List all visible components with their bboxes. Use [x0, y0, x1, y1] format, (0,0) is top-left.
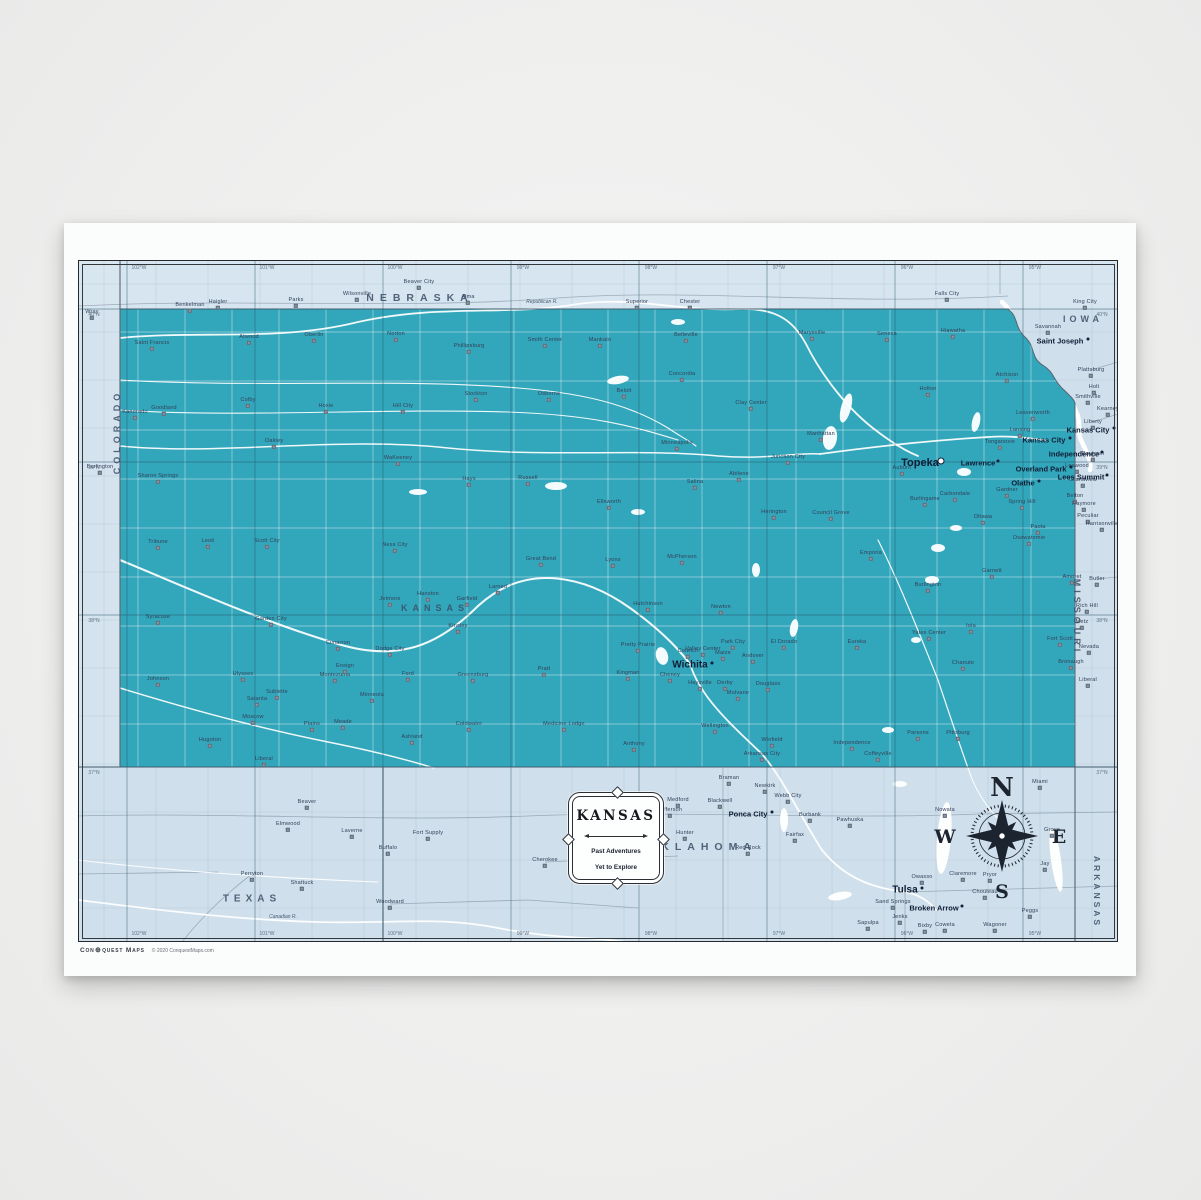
town-label: Kinsley: [448, 623, 467, 629]
town-label: El Dorado: [771, 639, 797, 645]
town-marker: [156, 682, 160, 686]
town-marker: [542, 672, 546, 676]
town-label: Newkirk: [755, 783, 776, 789]
town-label: Belton: [1067, 493, 1084, 499]
town-marker: [275, 695, 279, 699]
town-label: Greensburg: [457, 672, 488, 678]
town-marker: [607, 505, 611, 509]
town-marker: [324, 409, 328, 413]
town-marker: [850, 746, 854, 750]
city-marker: [961, 905, 964, 908]
state-label: COLORADO: [112, 390, 122, 475]
town-marker: [927, 636, 931, 640]
town-label: Sand Springs: [875, 899, 910, 905]
town-label: Jetmore: [379, 596, 400, 602]
state-label: ARKANSAS: [1092, 856, 1102, 928]
town-label: Atchison: [996, 372, 1019, 378]
grid-label-latitude: 38°N: [88, 618, 99, 624]
town-marker: [341, 725, 345, 729]
town-marker: [394, 337, 398, 341]
town-marker: [961, 666, 965, 670]
town-label: Sublette: [266, 689, 288, 695]
divider-line: [589, 836, 643, 837]
town-label: Cheney: [660, 672, 680, 678]
town-label: Concordia: [669, 371, 696, 377]
city-marker: [921, 887, 924, 890]
town-marker: [401, 409, 405, 413]
town-marker: [668, 678, 672, 682]
town-label: Fort Scott: [1047, 636, 1073, 642]
compass-east-label: E: [1052, 826, 1066, 848]
town-label: Cimarron: [326, 640, 350, 646]
town-label: Liberal: [255, 756, 273, 762]
town-marker: [731, 645, 735, 649]
town-label: Council Grove: [812, 510, 849, 516]
town-label: Jenks: [892, 914, 907, 920]
town-marker: [1005, 493, 1009, 497]
state-label: TEXAS: [223, 894, 281, 905]
town-marker: [786, 799, 790, 803]
town-marker: [208, 743, 212, 747]
town-marker: [782, 645, 786, 649]
compass-hub: [999, 833, 1005, 839]
town-label: Meade: [334, 719, 352, 725]
town-label: Maize: [715, 650, 731, 656]
town-marker: [1082, 507, 1086, 511]
town-marker: [866, 926, 870, 930]
town-label: Norton: [387, 331, 405, 337]
town-label: Eureka: [848, 639, 867, 645]
town-marker: [951, 334, 955, 338]
town-label: Leoti: [202, 538, 215, 544]
town-label: Seneca: [877, 331, 897, 337]
town-label: Osborne: [538, 391, 561, 397]
town-label: Burlingame: [910, 496, 940, 502]
town-marker: [646, 607, 650, 611]
town-label: Cherokee: [532, 857, 557, 863]
town-label: Braman: [719, 775, 739, 781]
city-marker: [711, 662, 714, 665]
town-marker: [1085, 609, 1089, 613]
town-label: Anthony: [623, 741, 645, 747]
grid-label-longitude: 95°W: [1029, 931, 1041, 937]
city-label: Saint Joseph: [1037, 337, 1084, 346]
town-marker: [763, 789, 767, 793]
town-label: Leavenworth: [1016, 410, 1050, 416]
town-marker: [810, 336, 814, 340]
town-marker: [388, 602, 392, 606]
town-label: Spring Hill: [1008, 499, 1035, 505]
town-label: Chester: [680, 299, 701, 305]
town-label: Mankato: [589, 337, 612, 343]
town-marker: [543, 863, 547, 867]
town-marker: [684, 338, 688, 342]
town-label: Arkansas City: [744, 751, 781, 757]
town-marker: [410, 740, 414, 744]
town-marker: [386, 851, 390, 855]
legend-plaque: KANSAS Past Adventures Yet to Explore: [568, 792, 664, 884]
town-label: Johnson: [147, 676, 169, 682]
town-label: Holton: [919, 386, 936, 392]
town-marker: [312, 338, 316, 342]
town-label: Webb City: [774, 793, 801, 799]
town-marker: [467, 349, 471, 353]
grid-label-latitude: 40°N: [88, 312, 99, 318]
town-marker: [920, 880, 924, 884]
town-marker: [336, 646, 340, 650]
town-label: Hugoton: [199, 737, 221, 743]
town-marker: [426, 836, 430, 840]
grid-label-longitude: 96°W: [901, 265, 913, 271]
town-label: Ness City: [382, 542, 407, 548]
town-marker: [668, 813, 672, 817]
town-marker: [701, 652, 705, 656]
town-marker: [926, 588, 930, 592]
state-label: NEBRASKA: [366, 292, 474, 304]
town-label: Hanston: [417, 591, 439, 597]
town-label: Smithville: [1075, 394, 1101, 400]
grid-label-latitude: 38°N: [1096, 618, 1107, 624]
compass-rose: N E S W: [932, 762, 1072, 902]
town-label: Coldwater: [456, 721, 483, 727]
town-label: Hays: [462, 476, 475, 482]
town-label: Marysville: [799, 330, 825, 336]
town-label: Garden City: [255, 616, 287, 622]
town-label: Garfield: [457, 596, 478, 602]
town-marker: [417, 285, 421, 289]
town-marker: [772, 515, 776, 519]
river-label: Republican R.: [526, 299, 557, 305]
town-label: Mulvane: [727, 690, 749, 696]
town-marker: [294, 303, 298, 307]
town-label: Haigler: [209, 299, 228, 305]
town-marker: [829, 516, 833, 520]
town-label: Winfield: [761, 737, 782, 743]
town-label: Raymore: [1072, 501, 1096, 507]
town-label: Manhattan: [807, 431, 835, 437]
town-marker: [255, 702, 259, 706]
town-marker: [393, 548, 397, 552]
town-marker: [1089, 373, 1093, 377]
town-label: Buffalo: [379, 845, 397, 851]
town-marker: [751, 659, 755, 663]
town-marker: [713, 729, 717, 733]
town-label: Laverne: [341, 828, 362, 834]
town-marker: [916, 736, 920, 740]
grid-label-longitude: 101°W: [259, 931, 274, 937]
town-label: Bixby: [918, 923, 932, 929]
grid-label-longitude: 99°W: [517, 931, 529, 937]
town-label: Satanta: [247, 696, 267, 702]
town-label: Kanorado: [122, 409, 147, 415]
town-marker: [1005, 378, 1009, 382]
town-label: Newton: [711, 604, 731, 610]
city-label: Tulsa: [892, 885, 917, 896]
town-marker: [1100, 527, 1104, 531]
town-label: Parks: [288, 297, 303, 303]
town-marker: [626, 676, 630, 680]
town-label: Beaver City: [404, 279, 435, 285]
town-marker: [471, 678, 475, 682]
town-label: Gardner: [996, 487, 1018, 493]
town-marker: [156, 479, 160, 483]
grid-label-latitude: 37°N: [88, 770, 99, 776]
town-marker: [1086, 400, 1090, 404]
town-label: Holt: [1089, 384, 1100, 390]
grid-label-longitude: 102°W: [131, 265, 146, 271]
town-marker: [943, 928, 947, 932]
town-marker: [680, 560, 684, 564]
town-label: Tonganoxie: [985, 439, 1015, 445]
town-label: Coweta: [935, 922, 955, 928]
legend-line-past-adventures: Past Adventures: [568, 848, 664, 855]
town-label: Coffeyville: [864, 751, 891, 757]
town-marker: [926, 392, 930, 396]
town-marker: [1046, 330, 1050, 334]
town-label: Kearney: [1097, 406, 1118, 412]
town-marker: [885, 337, 889, 341]
town-marker: [388, 905, 392, 909]
town-label: Scott City: [254, 538, 280, 544]
town-label: Clay Center: [735, 400, 766, 406]
town-label: Butler: [1089, 576, 1105, 582]
town-marker: [1028, 914, 1032, 918]
town-label: Andover: [742, 653, 764, 659]
town-marker: [474, 397, 478, 401]
town-label: Douglass: [756, 681, 781, 687]
town-label: Yates Center: [912, 630, 946, 636]
map-area: WrayHaiglerParksBenkelmanBeaver CityAlma…: [78, 260, 1118, 942]
town-label: Pawhuska: [837, 817, 864, 823]
town-label: Syracuse: [146, 614, 171, 620]
town-label: Plains: [304, 721, 320, 727]
town-label: Peculiar: [1077, 513, 1098, 519]
town-marker: [1095, 582, 1099, 586]
town-label: Lansing: [1010, 427, 1031, 433]
grid-label-longitude: 97°W: [773, 265, 785, 271]
town-label: Ulysses: [233, 671, 254, 677]
town-label: Minneapolis: [661, 440, 693, 446]
city-marker: [1069, 437, 1072, 440]
grid-label-latitude: 39°N: [1096, 465, 1107, 471]
town-marker: [343, 669, 347, 673]
town-label: Colwich: [678, 648, 699, 654]
town-marker: [162, 411, 166, 415]
city-marker: [1106, 474, 1109, 477]
town-label: Dodge City: [375, 646, 404, 652]
town-marker: [1087, 650, 1091, 654]
grid-label-latitude: 40°N: [1096, 312, 1107, 318]
town-label: Sapulpa: [857, 920, 879, 926]
town-marker: [206, 544, 210, 548]
town-label: Perryton: [241, 871, 263, 877]
town-marker: [770, 743, 774, 747]
town-label: Fairfax: [786, 832, 804, 838]
town-marker: [766, 687, 770, 691]
town-marker: [388, 652, 392, 656]
town-label: Plattsburg: [1078, 367, 1105, 373]
town-marker: [156, 620, 160, 624]
town-marker: [426, 597, 430, 601]
city-label: Olathe: [1011, 479, 1034, 488]
town-label: Peggs: [1022, 908, 1039, 914]
state-label: KANSAS: [401, 603, 469, 613]
city-label: Topeka: [901, 457, 939, 469]
town-marker: [998, 445, 1002, 449]
town-marker: [923, 502, 927, 506]
city-label: Kansas City: [1023, 436, 1066, 445]
town-marker: [350, 834, 354, 838]
town-marker: [953, 497, 957, 501]
city-marker: [997, 460, 1000, 463]
town-label: Elmwood: [276, 821, 300, 827]
town-label: Paola: [1030, 524, 1045, 530]
town-marker: [370, 698, 374, 702]
town-marker: [698, 686, 702, 690]
town-label: Fort Supply: [413, 830, 443, 836]
town-label: Belleville: [674, 332, 698, 338]
town-marker: [562, 727, 566, 731]
city-label: Independence: [1049, 450, 1099, 459]
grid-label-longitude: 97°W: [773, 931, 785, 937]
town-label: Pratt: [538, 666, 551, 672]
town-marker: [1031, 416, 1035, 420]
town-marker: [216, 305, 220, 309]
city-marker: [771, 811, 774, 814]
river-label: Canadian R.: [269, 914, 297, 920]
town-label: Lyons: [605, 557, 620, 563]
town-label: Larned: [489, 584, 507, 590]
town-marker: [891, 905, 895, 909]
copyright-text: © 2020 ConquestMaps.com: [152, 948, 214, 954]
city-label: Kansas City: [1067, 426, 1110, 435]
town-label: Liberty: [1084, 419, 1102, 425]
town-marker: [636, 648, 640, 652]
town-label: Moscow: [242, 714, 263, 720]
compass-north-label: N: [990, 773, 1014, 803]
town-label: McPherson: [667, 554, 697, 560]
grid-label-longitude: 100°W: [387, 265, 402, 271]
town-marker: [310, 727, 314, 731]
town-label: Goodland: [151, 405, 176, 411]
town-label: Osawatomie: [1013, 535, 1046, 541]
town-marker: [1020, 505, 1024, 509]
town-marker: [981, 520, 985, 524]
brand-logo: Con⊕quest Maps: [80, 946, 145, 954]
town-marker: [467, 482, 471, 486]
city-label: Broken Arrow: [909, 904, 958, 913]
grid-label-longitude: 102°W: [131, 931, 146, 937]
photo-background: WrayHaiglerParksBenkelmanBeaver CityAlma…: [0, 0, 1201, 1200]
town-marker: [719, 610, 723, 614]
town-label: Shattuck: [290, 880, 313, 886]
town-label: Pretty Prairie: [621, 642, 656, 648]
town-label: Salina: [687, 479, 704, 485]
town-label: Wellington: [701, 723, 729, 729]
town-marker: [241, 677, 245, 681]
town-marker: [848, 823, 852, 827]
town-marker: [945, 297, 949, 301]
town-marker: [300, 886, 304, 890]
town-marker: [793, 838, 797, 842]
town-marker: [786, 460, 790, 464]
town-label: Tribune: [148, 539, 168, 545]
town-label: Hutchinson: [633, 601, 663, 607]
town-marker: [635, 305, 639, 309]
town-label: King City: [1073, 299, 1097, 305]
town-label: Ellsworth: [597, 499, 621, 505]
town-label: Ottawa: [974, 514, 993, 520]
town-label: Savannah: [1035, 324, 1061, 330]
town-marker: [262, 762, 266, 766]
town-marker: [1027, 541, 1031, 545]
town-marker: [456, 629, 460, 633]
town-label: Parsons: [907, 730, 929, 736]
grid-label-longitude: 98°W: [645, 931, 657, 937]
town-marker: [467, 727, 471, 731]
town-marker: [622, 394, 626, 398]
town-label: Colby: [240, 397, 255, 403]
town-marker: [133, 415, 137, 419]
town-marker: [632, 747, 636, 751]
town-label: Superior: [626, 299, 648, 305]
town-marker: [598, 343, 602, 347]
town-label: Medicine Lodge: [543, 721, 585, 727]
town-marker: [1058, 642, 1062, 646]
town-label: Falls City: [935, 291, 960, 297]
compass-south-label: S: [995, 881, 1009, 902]
grid-label-longitude: 95°W: [1029, 265, 1041, 271]
city-label: Lees Summit: [1058, 473, 1105, 482]
town-marker: [718, 804, 722, 808]
town-label: Abilene: [729, 471, 749, 477]
city-marker: [1038, 480, 1041, 483]
town-marker: [188, 308, 192, 312]
grid-label-latitude: 39°N: [88, 465, 99, 471]
grid-label-longitude: 100°W: [387, 931, 402, 937]
town-label: WaKeeney: [384, 455, 412, 461]
town-label: Park City: [721, 639, 745, 645]
town-marker: [539, 562, 543, 566]
town-marker: [969, 629, 973, 633]
town-label: Derby: [717, 680, 733, 686]
town-marker: [688, 305, 692, 309]
town-label: Ford: [402, 671, 414, 677]
town-label: Carbondale: [940, 491, 970, 497]
grid-label-longitude: 101°W: [259, 265, 274, 271]
town-label: Ensign: [336, 663, 354, 669]
town-marker: [693, 485, 697, 489]
town-label: Oberlin: [304, 332, 323, 338]
town-marker: [1018, 433, 1022, 437]
town-marker: [269, 622, 273, 626]
town-label: Woodward: [376, 899, 404, 905]
town-marker: [808, 818, 812, 822]
legend-divider: [584, 834, 648, 838]
town-label: Oakley: [265, 438, 283, 444]
city-marker: [1101, 451, 1104, 454]
town-marker: [727, 781, 731, 785]
town-marker: [900, 471, 904, 475]
town-marker: [1081, 483, 1085, 487]
town-marker: [675, 446, 679, 450]
town-marker: [956, 736, 960, 740]
poster-footer: Con⊕quest Maps © 2020 ConquestMaps.com: [80, 946, 214, 954]
grid-label-longitude: 99°W: [517, 265, 529, 271]
city-label: Lawrence: [961, 459, 996, 468]
town-marker: [869, 556, 873, 560]
town-marker: [305, 805, 309, 809]
